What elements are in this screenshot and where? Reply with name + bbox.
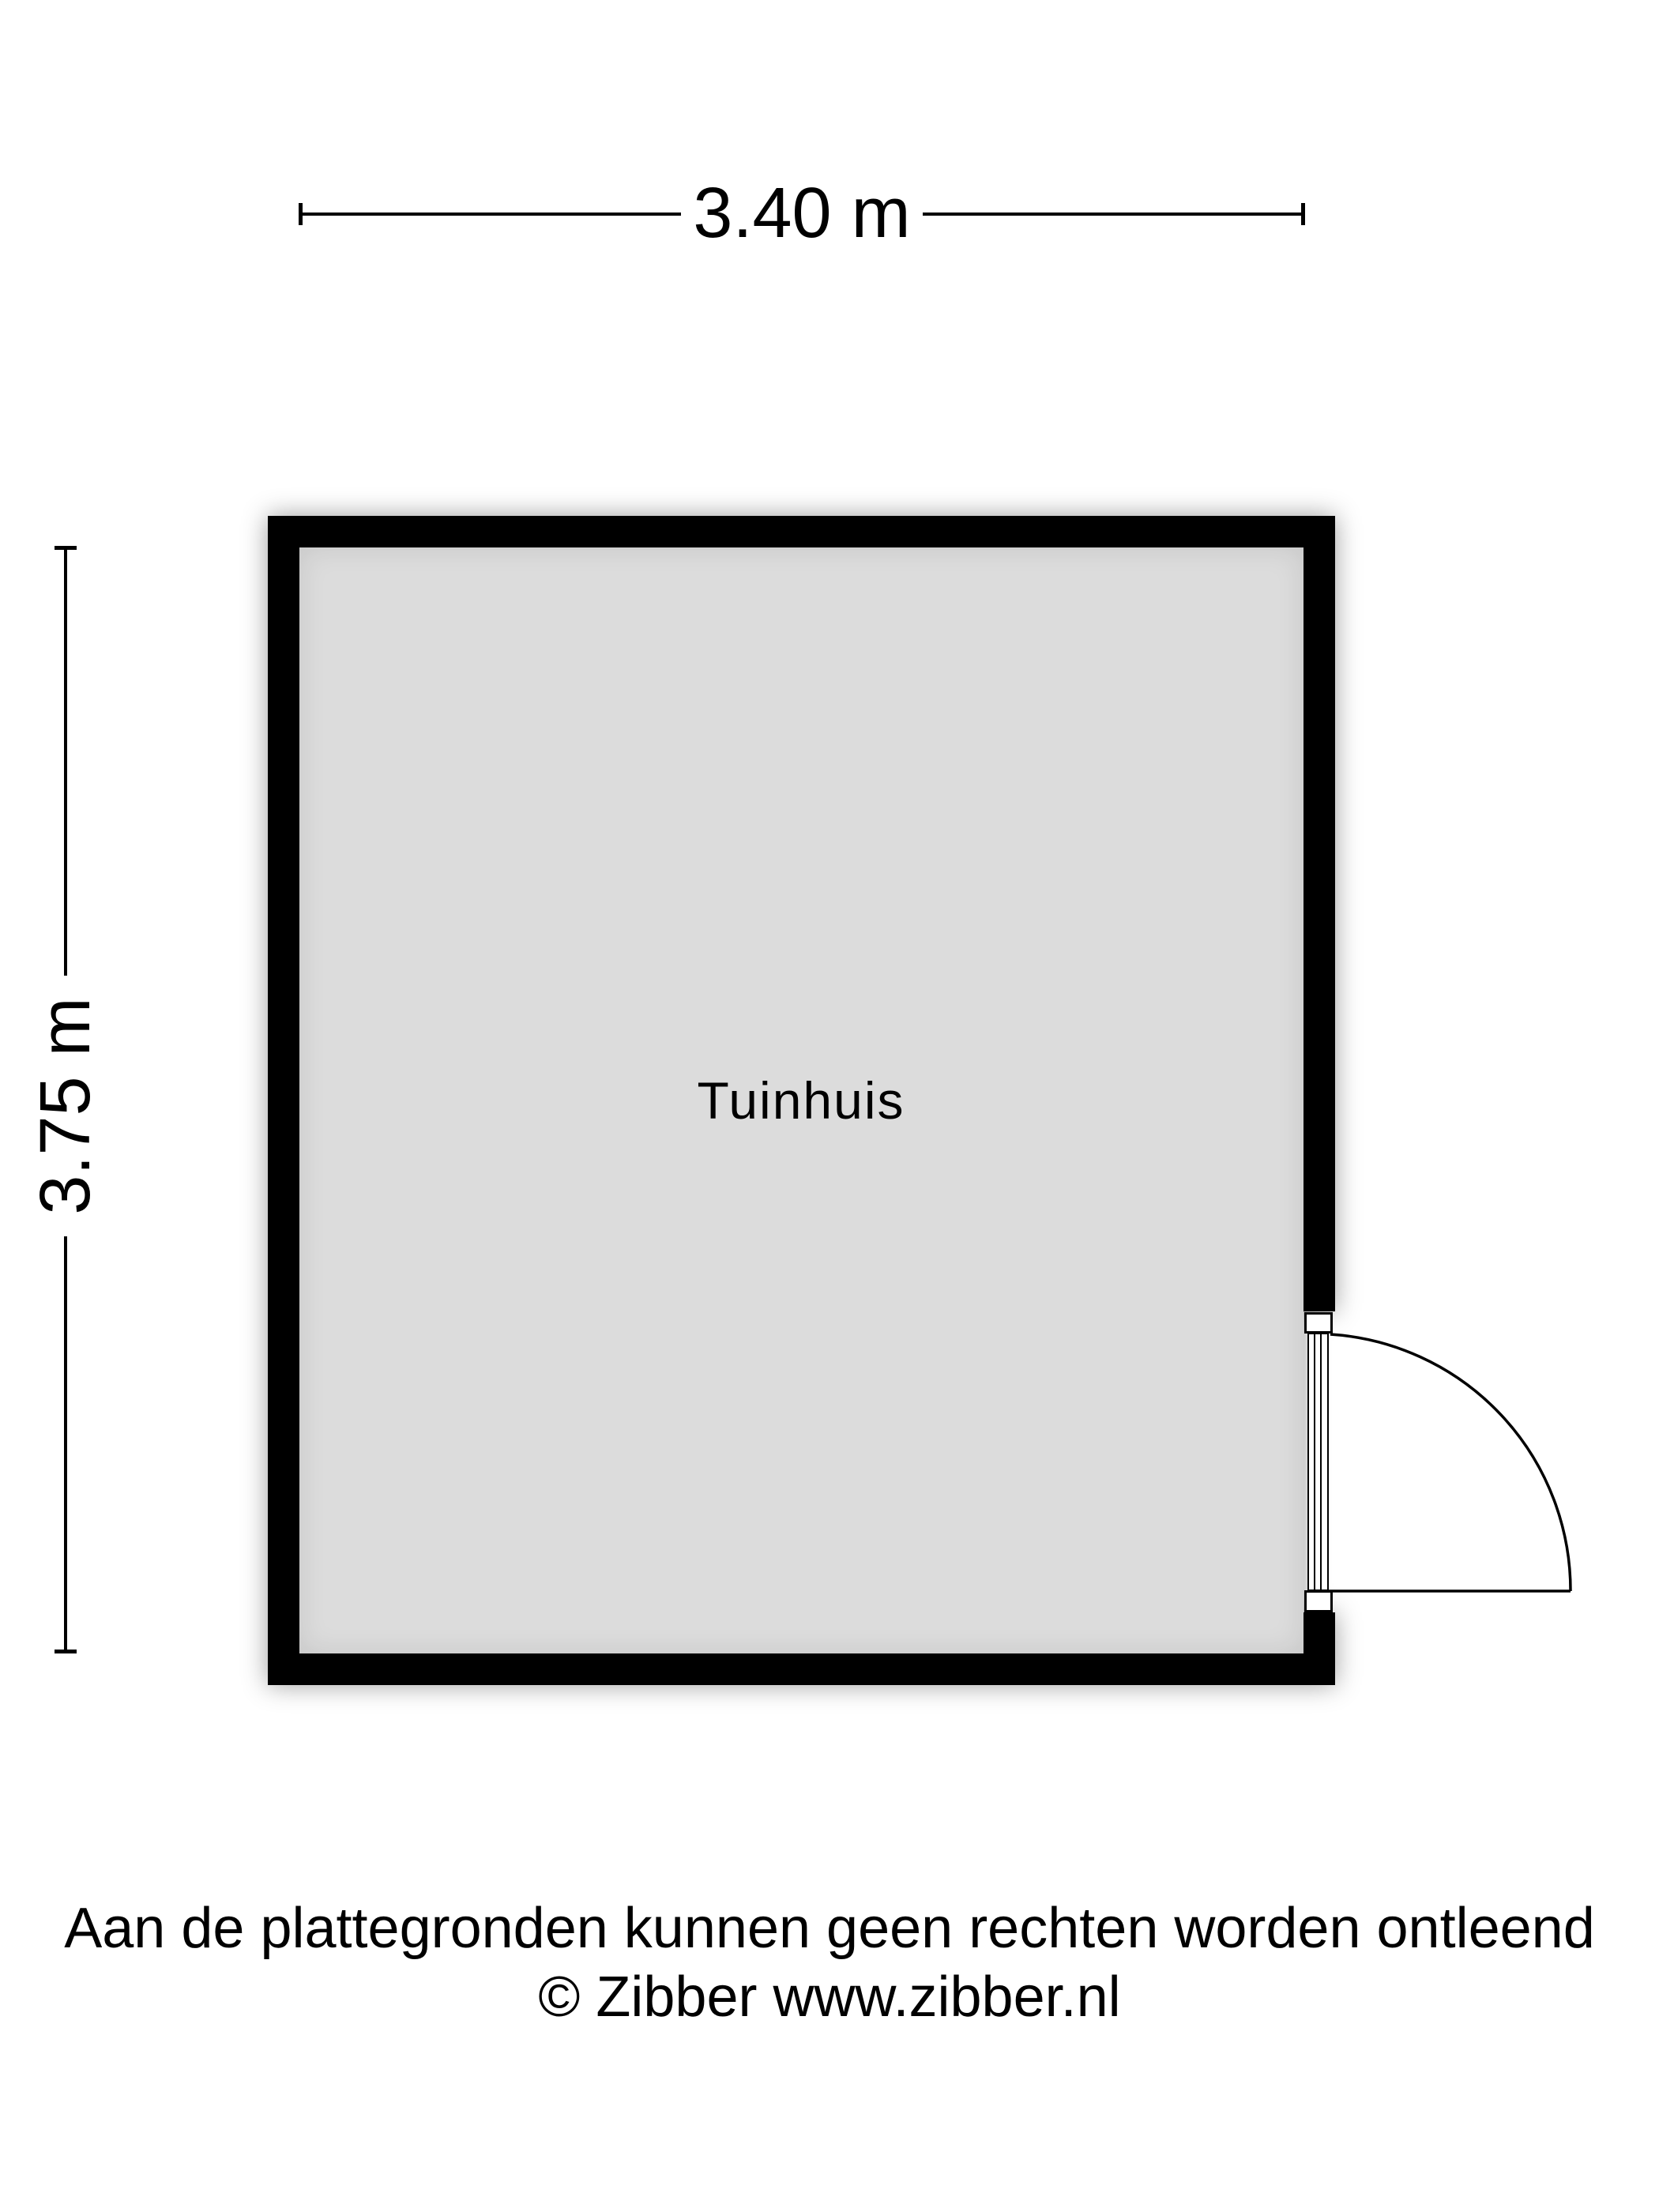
wall-left <box>268 516 299 1685</box>
door-leaf-line <box>1320 1334 1322 1589</box>
floorplan-canvas: 3.40 m 3.75 m Tuinhuis Aan de plattegron… <box>0 0 1659 2212</box>
room-label: Tuinhuis <box>564 1057 1038 1144</box>
wall-top <box>268 516 1335 547</box>
copyright-text: © Zibber www.zibber.nl <box>0 1963 1659 2032</box>
wall-bottom <box>268 1653 1335 1685</box>
footer: Aan de plattegronden kunnen geen rechten… <box>0 1894 1659 2032</box>
door-leaf-line <box>1314 1334 1315 1589</box>
wall-right-above-door <box>1303 516 1335 1311</box>
door-leaf <box>1307 1333 1329 1591</box>
disclaimer-text: Aan de plattegronden kunnen geen rechten… <box>0 1894 1659 1963</box>
wall-right-below-door <box>1303 1612 1335 1685</box>
door-jamb-top <box>1304 1312 1333 1334</box>
door-jamb-bottom <box>1304 1590 1333 1612</box>
